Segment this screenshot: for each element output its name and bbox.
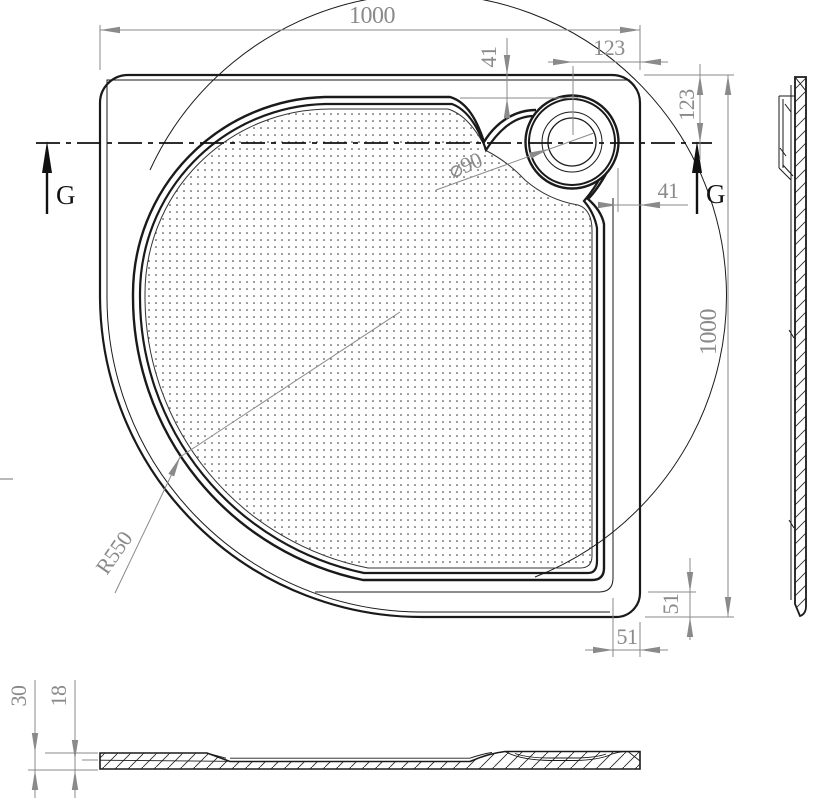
- dim-edge-height-label: 30: [6, 685, 31, 707]
- dim-overall-width-label: 1000: [349, 3, 396, 29]
- section-arrow-right: G: [692, 141, 726, 214]
- top-view: [100, 0, 726, 617]
- dim-drain-from-top-label: 123: [674, 89, 699, 121]
- dim-rim-offset-top-label: 41: [476, 47, 501, 68]
- section-view: 30 18: [6, 680, 640, 798]
- dim-drain-from-right-label: 123: [593, 35, 625, 60]
- dim-drain-rim-from-right-label: 41: [658, 178, 679, 203]
- section-label-left: G: [56, 180, 76, 210]
- dim-wall-thickness-label: 18: [46, 685, 71, 707]
- drain: [526, 96, 619, 189]
- dim-front-radius-label: R550: [91, 526, 138, 578]
- dim-flange-bottom-label: 51: [617, 624, 638, 649]
- dim-wall-thickness: 18: [46, 680, 98, 798]
- dim-overall-height-label: 1000: [696, 309, 722, 356]
- drawing-canvas: G G 1000 41: [0, 0, 831, 806]
- dim-flange-right: 51: [648, 558, 696, 640]
- drain-rim-outer-circle: [526, 96, 619, 189]
- side-profile-body: [795, 77, 806, 616]
- dim-overall-height: 1000: [696, 75, 731, 617]
- technical-drawing-page: G G 1000 41: [0, 0, 831, 806]
- section-arrow-left: G: [42, 141, 76, 214]
- side-drain-pocket: [779, 96, 795, 528]
- dim-flange-right-label: 51: [658, 594, 683, 615]
- dim-drain-from-top: 123: [674, 64, 703, 160]
- side-view: [779, 77, 806, 616]
- section-label-right: G: [706, 179, 726, 209]
